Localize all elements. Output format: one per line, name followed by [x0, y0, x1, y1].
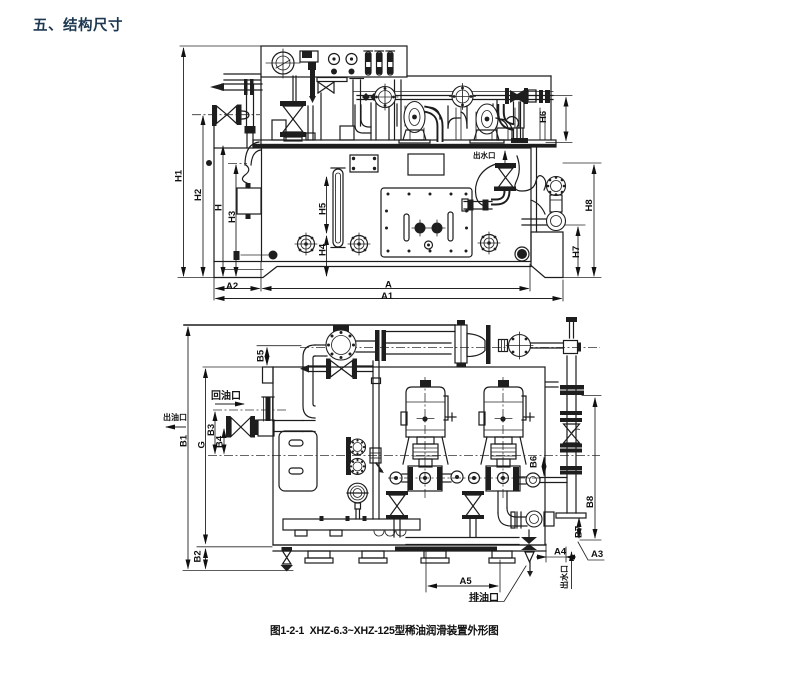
svg-text:H3: H3: [227, 211, 238, 223]
svg-text:B8: B8: [585, 496, 596, 508]
svg-text:A5: A5: [460, 576, 473, 587]
svg-text:出水口: 出水口: [473, 150, 496, 160]
svg-text:B5: B5: [256, 349, 267, 362]
svg-text:A3: A3: [591, 549, 603, 560]
svg-text:H1: H1: [174, 169, 185, 182]
svg-text:H8: H8: [584, 199, 595, 211]
svg-text:G: G: [197, 441, 208, 448]
svg-text:A1: A1: [381, 291, 394, 302]
svg-text:H2: H2: [193, 189, 204, 201]
svg-text:A4: A4: [554, 547, 567, 558]
svg-text:出水口: 出水口: [559, 565, 569, 589]
svg-text:B3: B3: [206, 424, 217, 436]
svg-text:B7: B7: [574, 526, 585, 538]
svg-text:H4: H4: [318, 243, 329, 256]
svg-text:H: H: [214, 204, 225, 211]
svg-text:排油口: 排油口: [469, 591, 499, 604]
svg-text:B1: B1: [179, 434, 190, 447]
svg-text:B4: B4: [215, 435, 226, 448]
svg-text:回油口: 回油口: [211, 389, 241, 402]
svg-text:B6: B6: [529, 456, 540, 468]
svg-text:H5: H5: [318, 202, 329, 215]
svg-text:出油口: 出油口: [163, 412, 187, 422]
svg-text:A: A: [385, 280, 392, 291]
svg-text:B2: B2: [193, 550, 204, 562]
svg-text:A2: A2: [226, 281, 238, 292]
svg-text:H7: H7: [571, 246, 582, 258]
